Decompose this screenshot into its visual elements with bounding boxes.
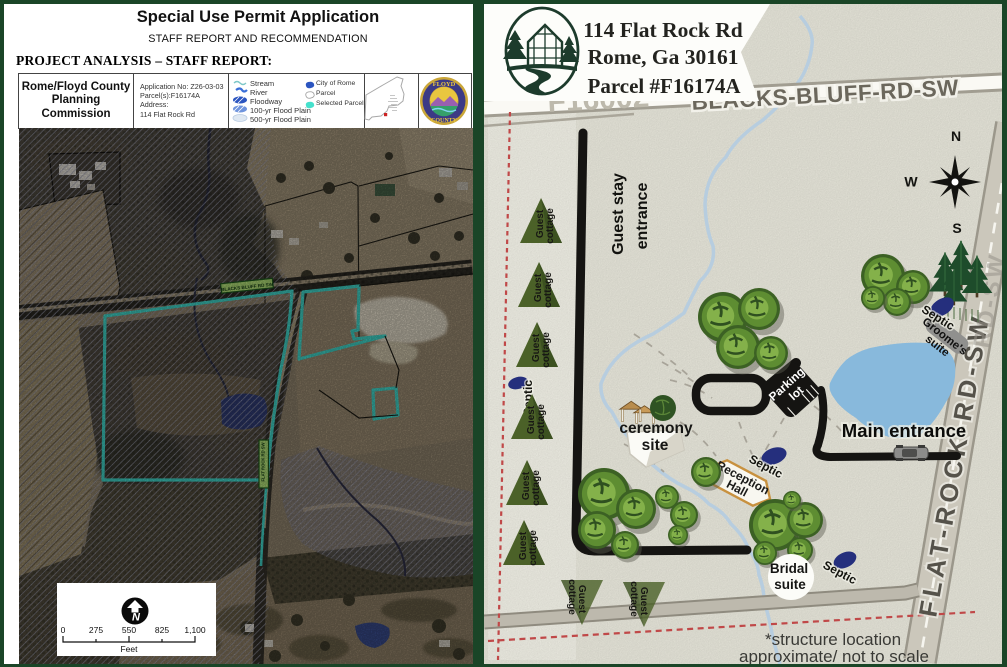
svg-text:Parcel #F16174A: Parcel #F16174A: [588, 74, 742, 98]
svg-text:114 Flat Rock Rd: 114 Flat Rock Rd: [583, 18, 743, 42]
svg-text:cottage: cottage: [536, 404, 547, 440]
svg-text:cottage: cottage: [566, 579, 577, 615]
svg-text:cottage: cottage: [531, 470, 542, 506]
svg-text:cottage: cottage: [541, 332, 552, 368]
svg-text:Feet: Feet: [120, 644, 138, 654]
svg-text:1,100: 1,100: [184, 625, 206, 635]
svg-text:275: 275: [89, 625, 103, 635]
svg-text:Guest stay: Guest stay: [610, 173, 627, 255]
svg-text:suite: suite: [774, 577, 806, 592]
svg-text:approximate/ not to scale: approximate/ not to scale: [739, 647, 929, 664]
svg-text:entrance: entrance: [634, 183, 651, 250]
svg-text:cottage: cottage: [545, 208, 556, 244]
svg-text:N: N: [132, 612, 141, 624]
svg-text:COUNTY: COUNTY: [431, 118, 458, 124]
svg-text:S: S: [952, 220, 961, 236]
svg-text:site: site: [642, 437, 669, 454]
svg-text:Bridal: Bridal: [770, 561, 808, 576]
svg-text:cottage: cottage: [628, 581, 639, 617]
svg-text:cottage: cottage: [528, 530, 539, 566]
svg-text:0: 0: [61, 625, 66, 635]
svg-text:ceremony: ceremony: [619, 420, 693, 437]
svg-text:W: W: [904, 174, 918, 190]
svg-text:550: 550: [122, 625, 136, 635]
svg-text:cottage: cottage: [543, 272, 554, 308]
svg-text:N: N: [951, 128, 961, 144]
svg-text:825: 825: [155, 625, 169, 635]
svg-text:Main entrance: Main entrance: [842, 420, 966, 441]
svg-text:Rome, Ga 30161: Rome, Ga 30161: [587, 45, 738, 69]
svg-text:FLOYD: FLOYD: [433, 81, 456, 88]
